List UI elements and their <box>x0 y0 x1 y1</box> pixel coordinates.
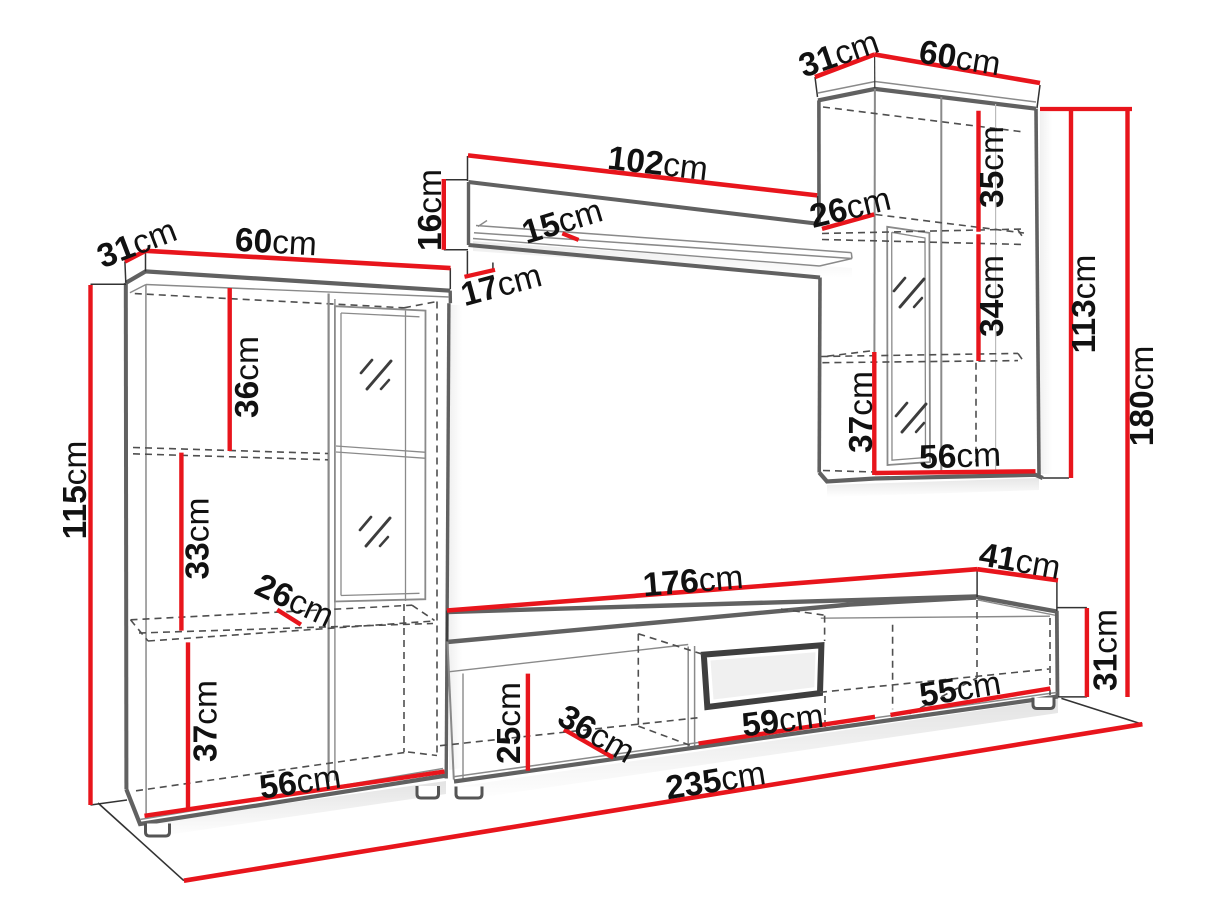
svg-text:33cm: 33cm <box>180 498 217 580</box>
svg-text:36cm: 36cm <box>229 336 266 418</box>
svg-text:25cm: 25cm <box>491 682 528 764</box>
svg-text:31cm: 31cm <box>1088 609 1125 691</box>
svg-text:37cm: 37cm <box>843 371 880 453</box>
svg-text:16cm: 16cm <box>412 169 449 251</box>
svg-text:180cm: 180cm <box>1124 346 1161 447</box>
svg-text:113cm: 113cm <box>1066 255 1103 354</box>
svg-text:37cm: 37cm <box>188 680 225 762</box>
svg-text:35cm: 35cm <box>974 126 1011 208</box>
svg-text:60cm: 60cm <box>234 222 318 264</box>
svg-text:56cm: 56cm <box>918 437 1001 477</box>
svg-text:115cm: 115cm <box>57 441 94 540</box>
svg-text:34cm: 34cm <box>974 255 1011 337</box>
